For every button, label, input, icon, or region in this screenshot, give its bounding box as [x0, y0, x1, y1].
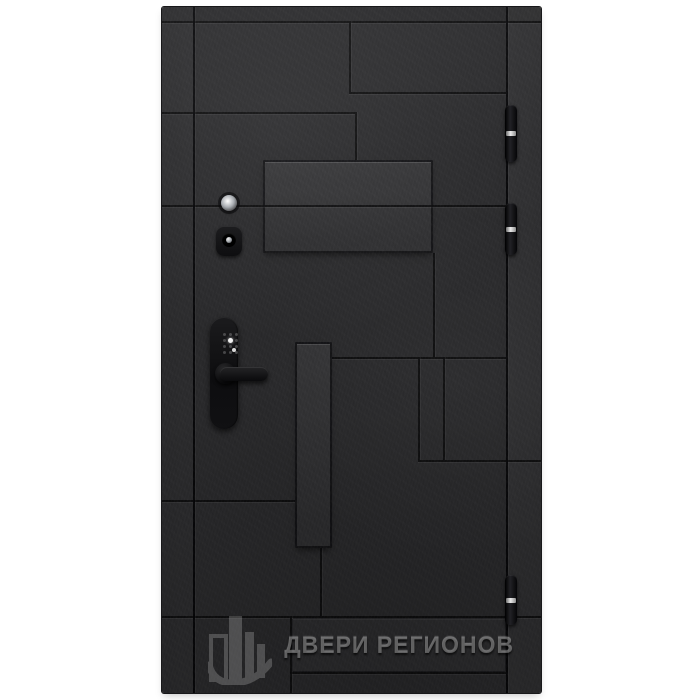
panel-groove: [162, 500, 295, 502]
hinge-band: [506, 227, 516, 232]
brand-text: ДВЕРИ РЕГИОНОВ: [284, 632, 489, 660]
leaf-seam: [193, 7, 195, 693]
door: ДВЕРИ РЕГИОНОВ: [162, 7, 541, 693]
panel-groove: [290, 672, 506, 674]
panel-groove: [290, 616, 292, 693]
raised-panel: [292, 618, 506, 672]
raised-panel: [263, 160, 433, 253]
brand-watermark: ДВЕРИ РЕГИОНОВ: [202, 605, 502, 690]
panel-groove: [349, 21, 351, 92]
hinge: [505, 203, 517, 255]
panel-groove: [418, 460, 541, 462]
panel-groove: [162, 21, 541, 23]
door-frame-right: [508, 7, 541, 693]
raised-panel: [295, 342, 332, 548]
door-product-image: ДВЕРИ РЕГИОНОВ: [0, 0, 700, 700]
peephole: [221, 195, 237, 211]
door-frame-left: [162, 7, 193, 693]
panel-groove: [332, 357, 506, 359]
keyhole: [222, 233, 236, 247]
panel-groove: [443, 357, 445, 460]
panel-groove: [162, 616, 541, 618]
panel-groove: [349, 92, 506, 94]
cylinder-cover: [216, 226, 242, 256]
panel-groove: [433, 253, 435, 357]
panel-groove: [162, 112, 355, 114]
buildings-logo-icon: [208, 608, 272, 685]
panel-groove: [418, 357, 420, 460]
hinge: [505, 105, 517, 162]
leaf-seam: [506, 7, 508, 693]
hinge: [505, 575, 517, 625]
panel-groove: [355, 112, 357, 160]
panel-groove: [162, 205, 506, 207]
hinge-band: [506, 131, 516, 136]
panel-groove: [320, 548, 322, 616]
hinge-band: [506, 598, 516, 603]
door-handle-lever: [220, 367, 268, 381]
door-frame-top: [162, 7, 541, 21]
keyhole-pin: [226, 237, 232, 243]
